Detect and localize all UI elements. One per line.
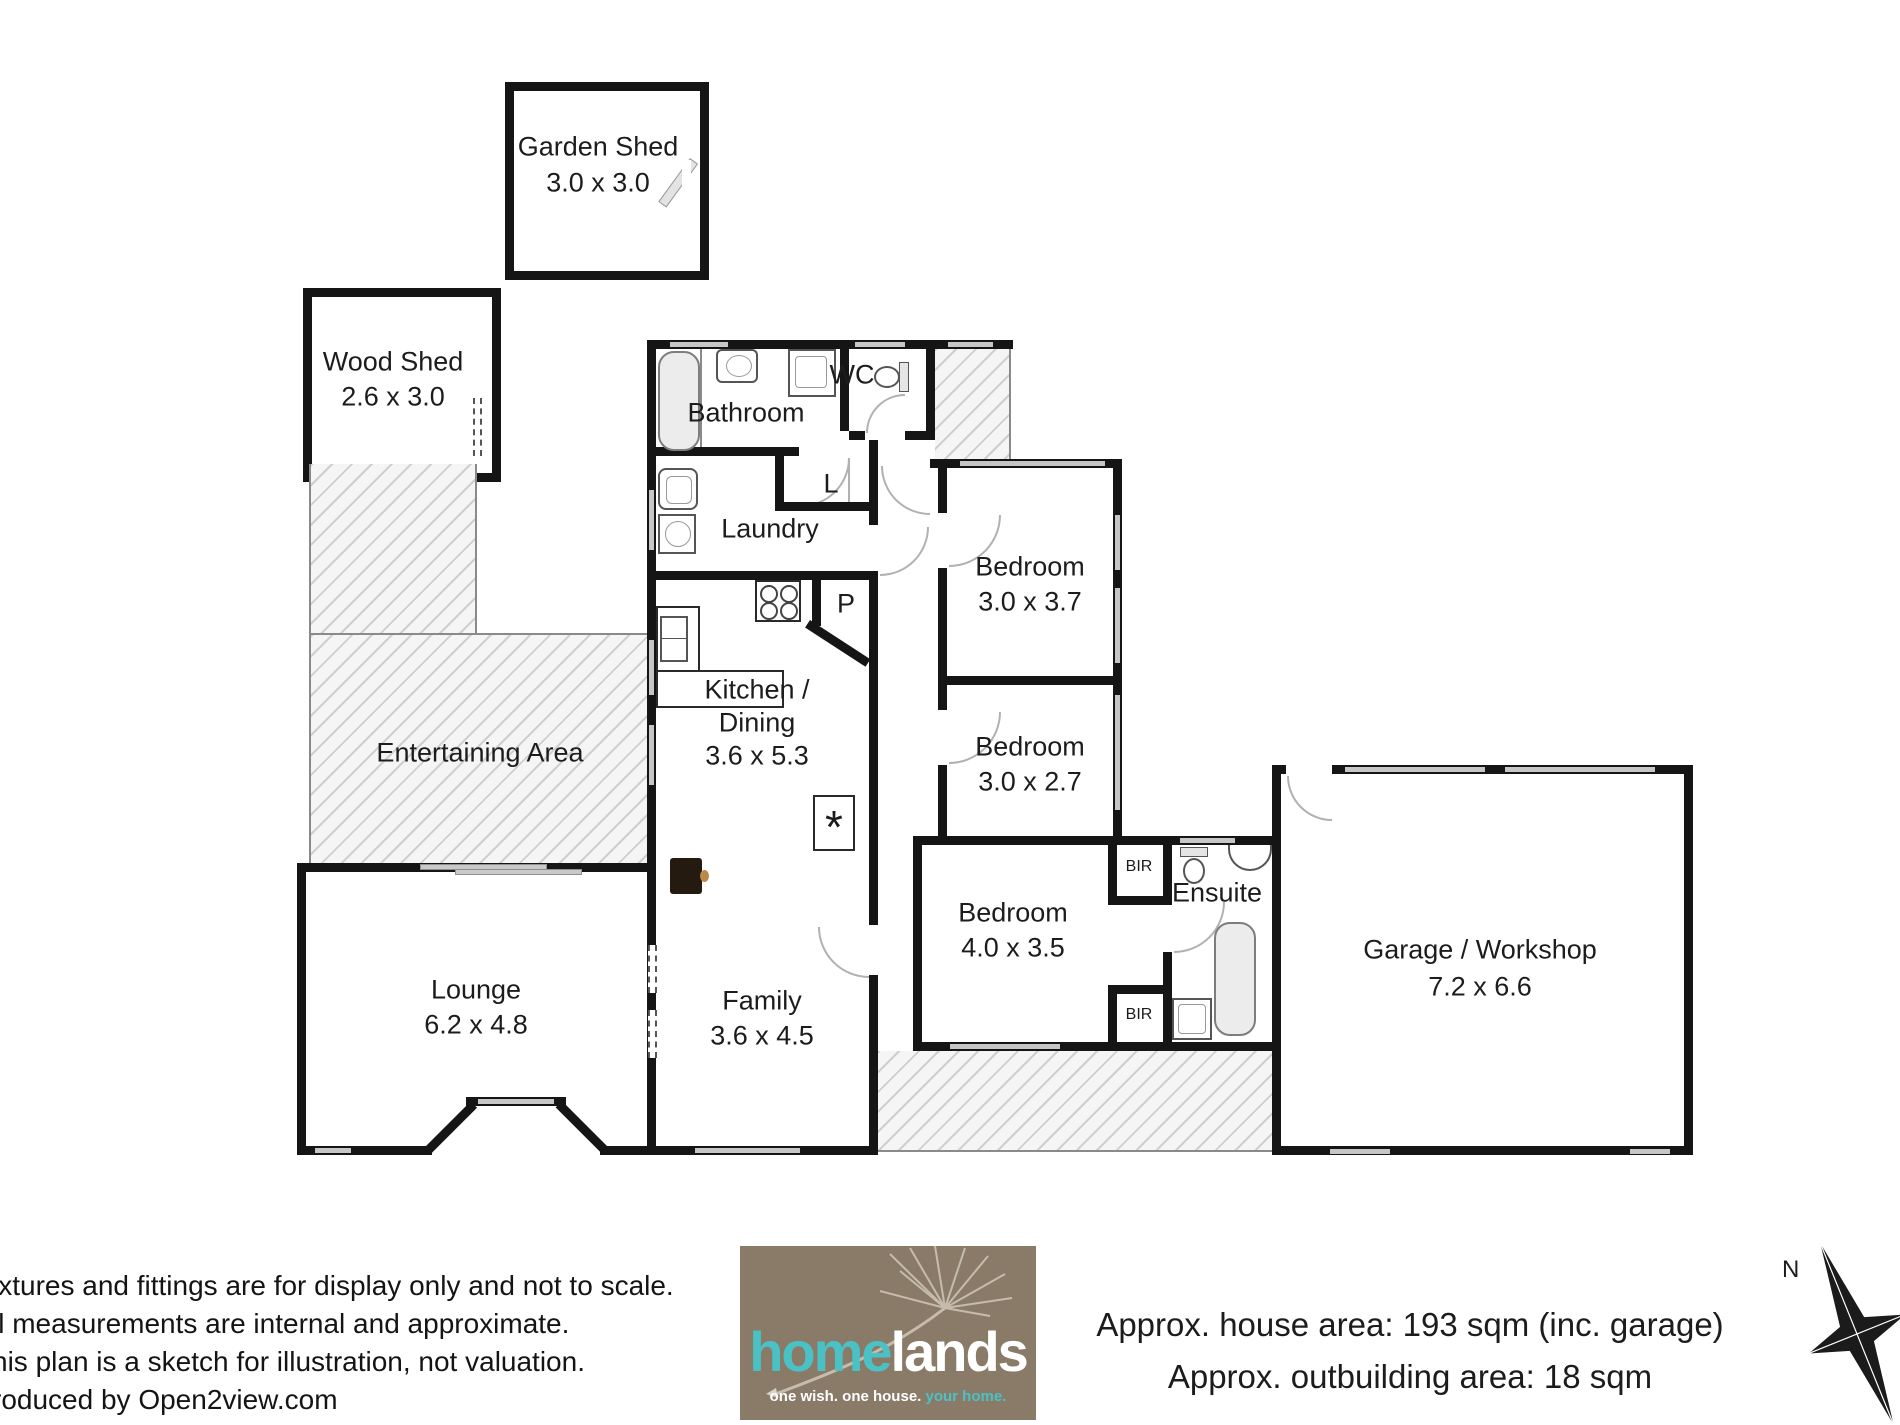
walkway-hatch (311, 464, 475, 633)
closet-label: BIR (1126, 858, 1153, 876)
door-swing (880, 464, 932, 516)
window (1115, 695, 1120, 810)
heater-marker: * (825, 800, 843, 854)
room-label: Entertaining Area (376, 738, 583, 769)
closet-label: P (837, 589, 855, 620)
cased-opening (648, 1010, 657, 1058)
room-label: Bedroom (975, 552, 1085, 583)
window (478, 1099, 554, 1104)
cased-opening (648, 945, 657, 993)
window (1505, 767, 1655, 772)
room-label: Bedroom (975, 732, 1085, 763)
shed-opening (473, 398, 482, 456)
room-label: Garden Shed (518, 132, 679, 163)
room-label: WC (830, 360, 875, 391)
wood-heater-icon (670, 858, 702, 894)
door-swing (817, 925, 871, 979)
garage-door (1330, 1149, 1390, 1154)
door-swing (1286, 774, 1334, 822)
window (695, 1148, 800, 1153)
room-label: Bathroom (687, 398, 804, 429)
outbuilding-area-text: Approx. outbuilding area: 18 sqm (1055, 1358, 1765, 1396)
window (1115, 588, 1120, 663)
closet-label: BIR (1126, 1006, 1153, 1024)
window (670, 342, 728, 347)
entry-hatch (878, 1051, 1272, 1150)
disclaimer-line: his plan is a sketch for illustration, n… (0, 1346, 585, 1378)
room-dims: 3.0 x 2.7 (978, 767, 1082, 798)
floorplan-canvas: Garden Shed 3.0 x 3.0 Wood Shed 2.6 x 3.… (0, 0, 1900, 1425)
porch-hatch (935, 349, 1009, 461)
room-dims: 3.0 x 3.7 (978, 587, 1082, 618)
compass-icon (1747, 1222, 1900, 1425)
toilet-tank-icon (1180, 847, 1208, 857)
compass-north-label: N (1782, 1256, 1799, 1284)
window (649, 640, 654, 695)
room-label: Lounge (431, 975, 521, 1006)
room-dims: 7.2 x 6.6 (1428, 972, 1532, 1003)
room-dims: 3.0 x 3.0 (546, 168, 650, 199)
window (948, 342, 993, 347)
door-swing (878, 525, 930, 577)
logo-lands: lands (891, 1320, 1027, 1383)
area-summary: Approx. house area: 193 sqm (inc. garage… (1055, 1306, 1765, 1396)
sliding-door (455, 869, 582, 875)
window (1115, 515, 1120, 570)
room-dims: 3.6 x 4.5 (710, 1021, 814, 1052)
room-label: Garage / Workshop (1363, 935, 1597, 966)
room-dims: 2.6 x 3.0 (341, 382, 445, 413)
bathtub-icon (1214, 922, 1256, 1036)
disclaimer-line: roduced by Open2view.com (0, 1384, 338, 1416)
logo-tagline: one wish. one house. your home. (740, 1388, 1036, 1405)
door-swing (865, 393, 907, 435)
room-label: Kitchen / (704, 675, 809, 706)
disclaimer-line: ixtures and fittings are for display onl… (0, 1270, 674, 1302)
garage-door (1630, 1149, 1670, 1154)
room-label: Bedroom (958, 898, 1068, 929)
room-dims: 3.6 x 5.3 (705, 741, 809, 772)
disclaimer-line: ll measurements are internal and approxi… (0, 1308, 569, 1340)
room-dims: 4.0 x 3.5 (961, 933, 1065, 964)
toilet-icon (874, 366, 900, 388)
homelands-logo: homelands one wish. one house. your home… (740, 1246, 1036, 1420)
window (1345, 767, 1485, 772)
window (649, 725, 654, 785)
kitchen-sink-icon (660, 616, 688, 662)
room-label: Dining (719, 708, 796, 739)
window (855, 342, 905, 347)
closet-label: L (823, 469, 838, 500)
room-dims: 6.2 x 4.8 (424, 1010, 528, 1041)
logo-wordmark: homelands (740, 1324, 1036, 1380)
window (1180, 838, 1235, 843)
house-area-text: Approx. house area: 193 sqm (inc. garage… (1055, 1306, 1765, 1344)
toilet-tank-icon (899, 362, 909, 392)
window (315, 1148, 351, 1153)
logo-home: home (749, 1320, 890, 1383)
room-label: Ensuite (1172, 878, 1262, 909)
window (960, 461, 1105, 466)
window (950, 1044, 1060, 1049)
room-label: Laundry (721, 514, 819, 545)
room-label: Wood Shed (323, 347, 464, 378)
room-label: Family (722, 986, 802, 1017)
window (649, 490, 654, 550)
